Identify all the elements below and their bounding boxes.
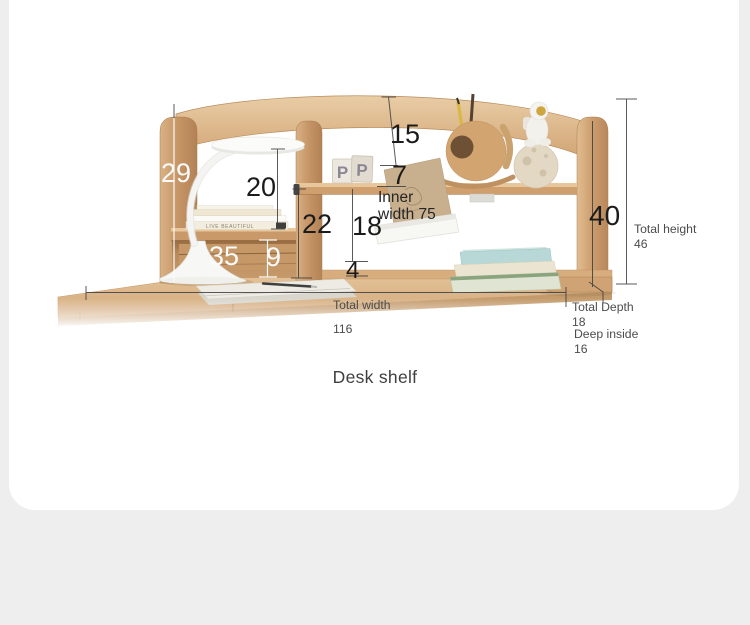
deep-inside-value: 16 (574, 342, 638, 357)
dim-22-right-open: 22 (302, 211, 332, 238)
dim-total-height: Total height 46 (634, 222, 696, 251)
dim-29-left-panel: 29 (161, 160, 191, 187)
dim-4-base: 4 (346, 259, 359, 283)
dim-deep-inside: Deep inside 16 (574, 327, 638, 356)
dim-total-depth: Total Depth 18 (572, 300, 634, 329)
book-stack-right (450, 247, 561, 293)
deep-inside-label: Deep inside (574, 327, 638, 341)
total-width-label: Total width (333, 298, 391, 312)
total-height-label: Total height (634, 222, 696, 236)
dim-35-cubby-width: 35 (209, 243, 239, 270)
dim-9-under-shelf: 9 (266, 244, 281, 271)
total-width-value: 116 (333, 322, 391, 337)
dim-15-top-gap: 15 (390, 121, 420, 148)
total-depth-label: Total Depth (572, 300, 634, 314)
letter-blocks: P P (333, 156, 373, 183)
dim-7-shelf-lip: 7 (392, 162, 407, 189)
block-letter-p1: P (337, 163, 348, 182)
dim-total-width: Total width 116 (333, 298, 391, 336)
total-height-value: 46 (634, 237, 696, 252)
dim-20-left-gap: 20 (246, 174, 276, 201)
product-title: Desk shelf (0, 367, 750, 388)
book-stack-left: LIVE BEAUTIFUL (186, 206, 288, 231)
book-spine-text: LIVE BEAUTIFUL (206, 224, 254, 230)
dim-40-right-panel: 40 (589, 202, 620, 230)
dim-inner-width: Inner width 75 (378, 189, 446, 224)
block-letter-p2: P (356, 161, 368, 180)
product-photo: P P (0, 0, 750, 460)
